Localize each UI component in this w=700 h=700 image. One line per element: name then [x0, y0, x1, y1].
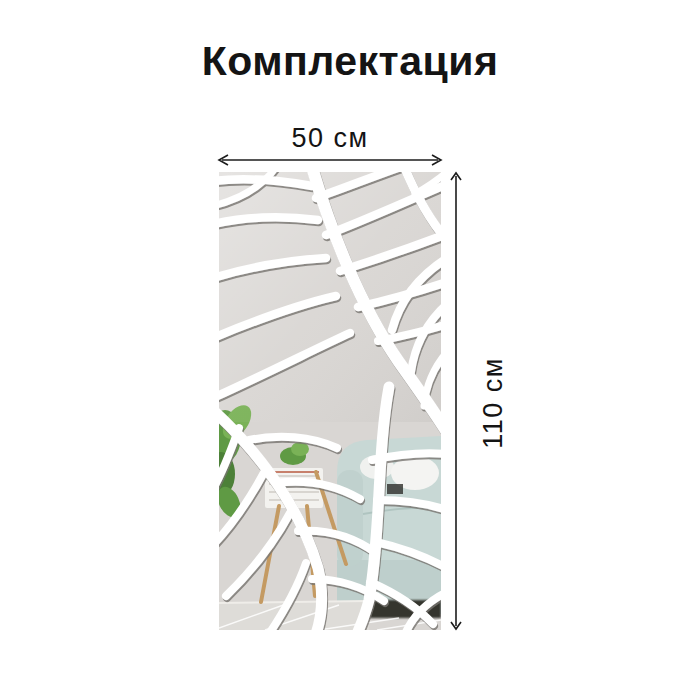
- leaf-vein-mirror-panel: [219, 172, 441, 630]
- width-arrow-icon: [219, 155, 441, 165]
- height-arrow-icon: [451, 173, 461, 629]
- product-infographic: Комплектация 50 см 110 см: [0, 0, 700, 700]
